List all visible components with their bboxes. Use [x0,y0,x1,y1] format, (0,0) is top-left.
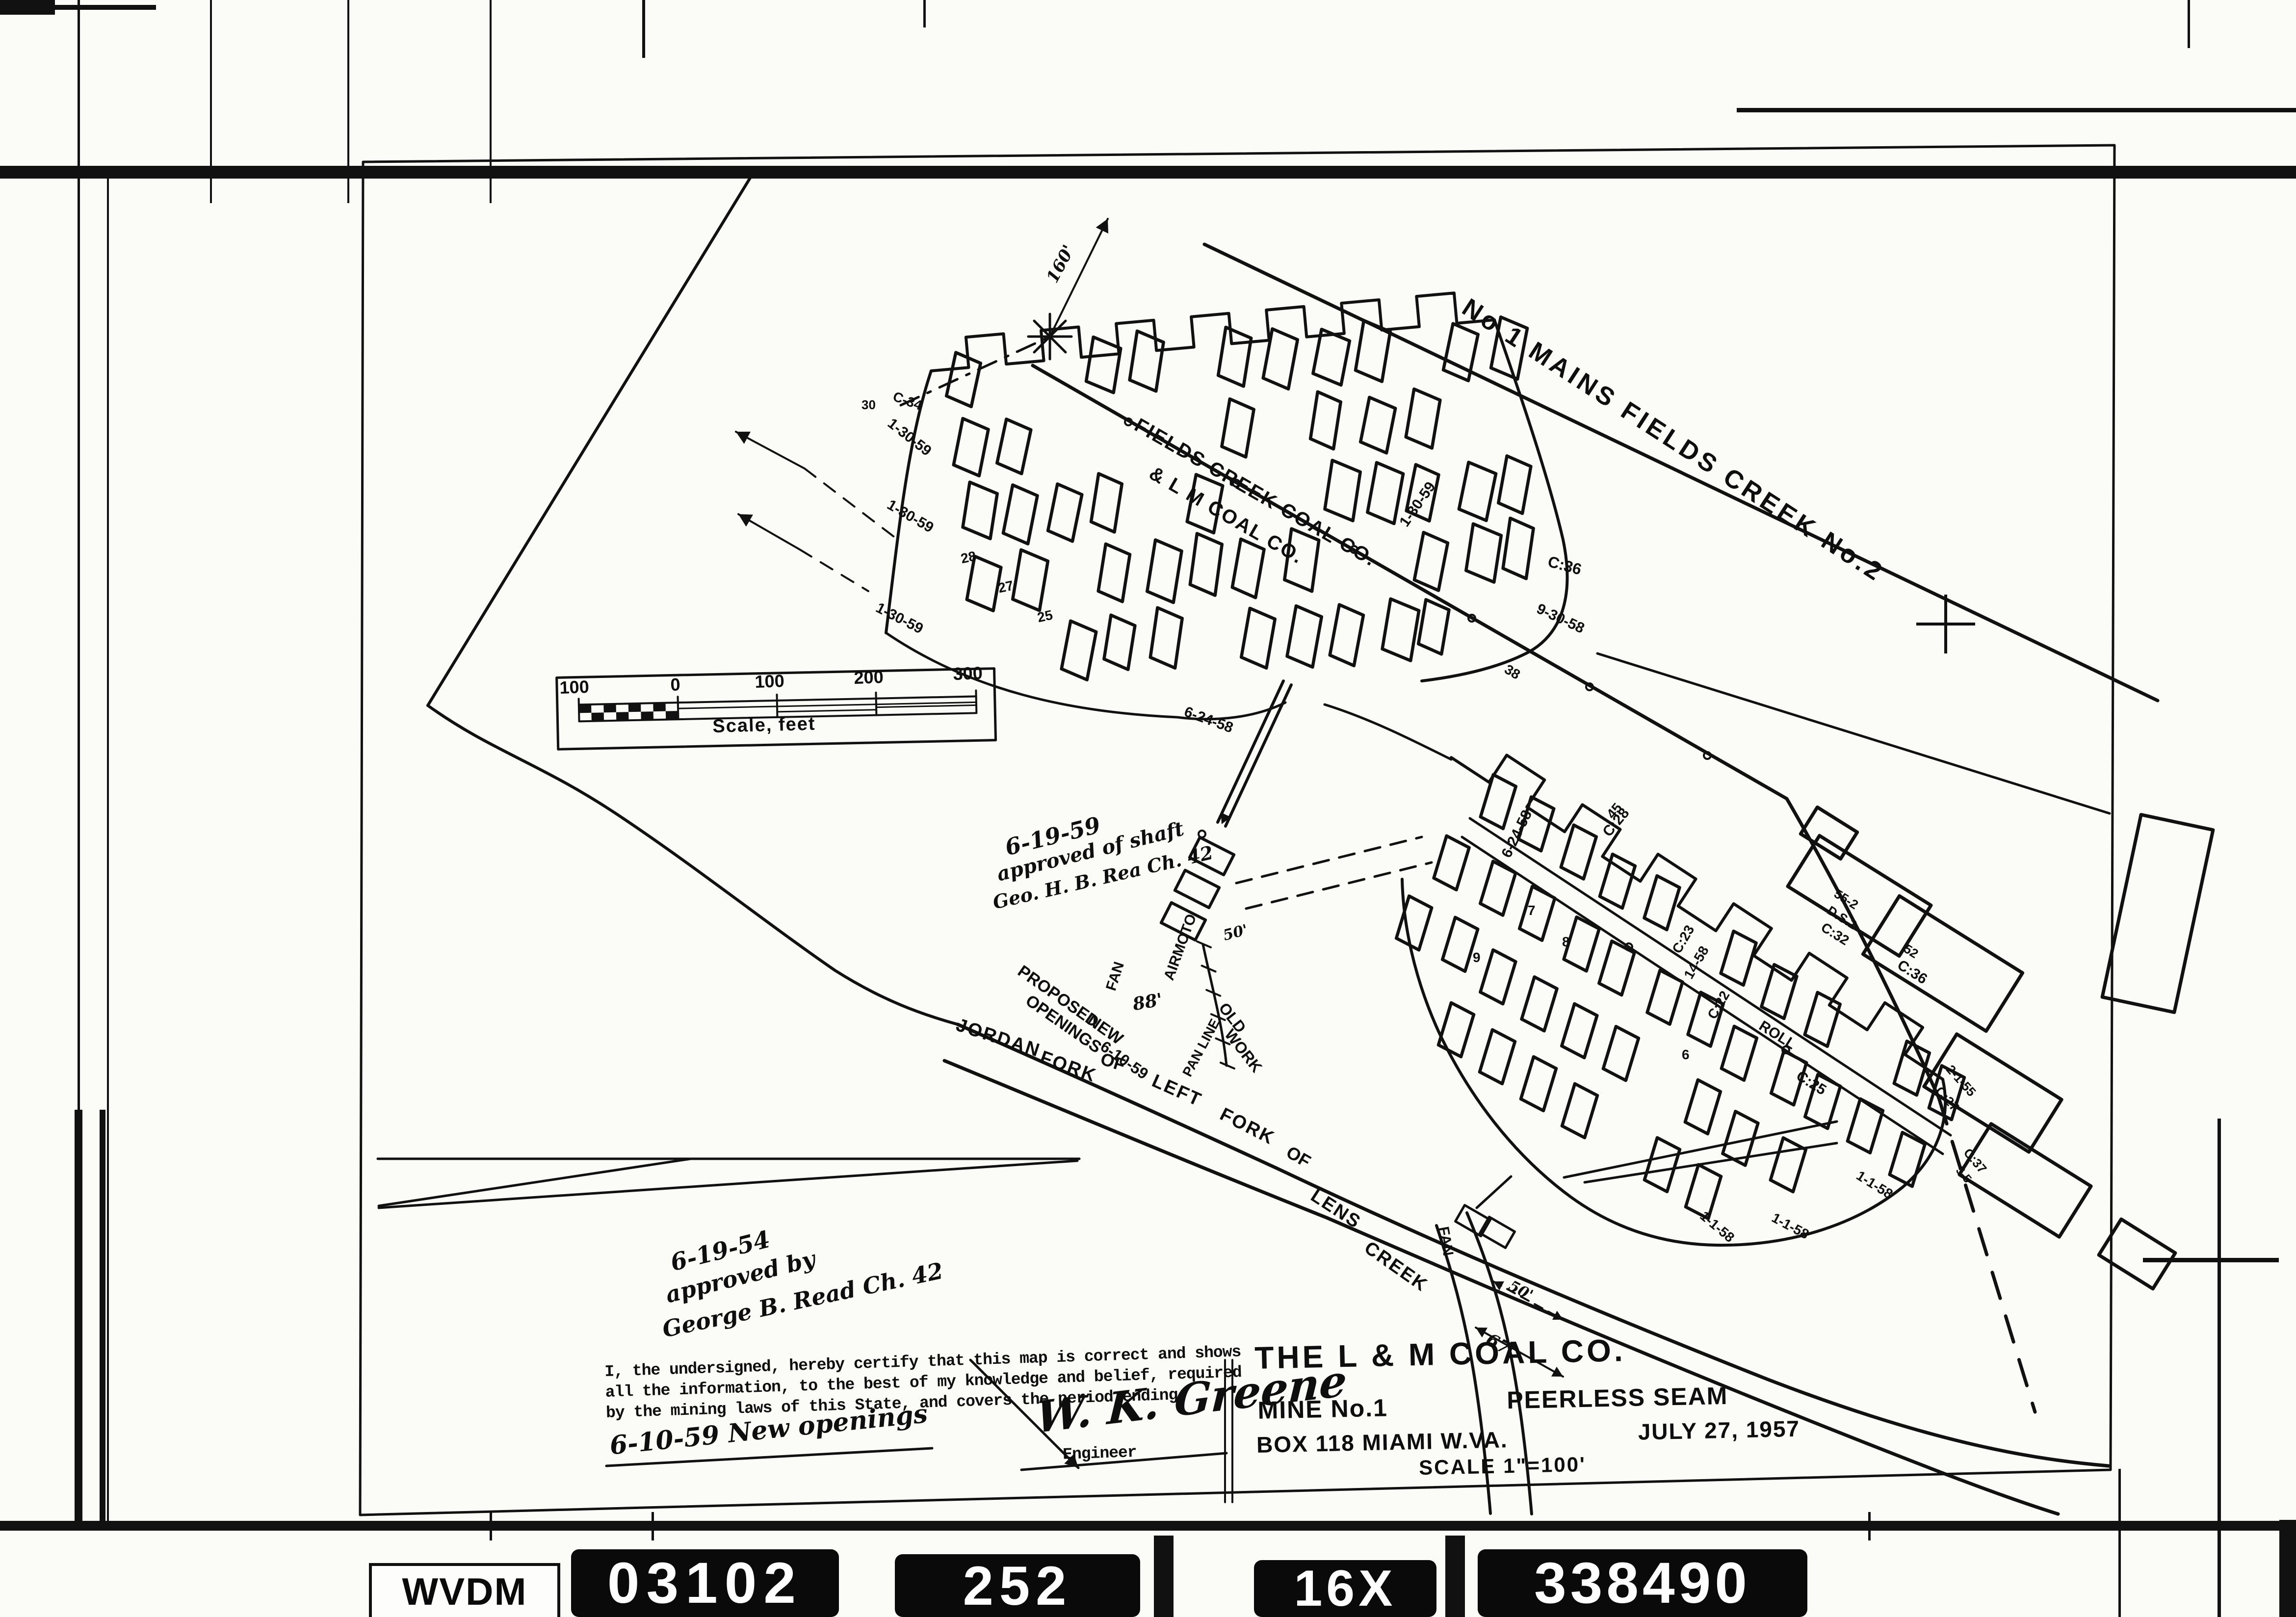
scale-bar-tick: 300 [953,664,983,683]
creek-lines [944,1024,2109,1514]
map-scale-note: SCALE 1"=100' [1419,1454,1587,1478]
film-strip-plate: 03102 [571,1549,839,1617]
signature-title: Engineer [1063,1444,1137,1463]
isolated-pillars [1788,807,2213,1288]
company-address: BOX 118 MIAMI W.VA. [1256,1428,1508,1456]
film-strip-plate: 16X [1254,1560,1436,1617]
scale-bar-tick: 100 [755,672,784,691]
film-strip-plate: 338490 [1478,1549,1807,1617]
seam-name: PEERLESS SEAM [1507,1383,1728,1412]
crease-marks [378,1121,1837,1208]
scale-bar-tick: 200 [854,668,884,687]
map-annotation: 7 [1528,904,1536,917]
scale-bar-tick: 100 [559,678,589,697]
film-strip-agency: WVDM [369,1563,560,1617]
map-annotation: 6 [1682,1048,1690,1062]
scale-bar-caption: Scale, feet [712,715,816,736]
map-annotation: 9 [1473,951,1481,965]
mine-workings-panel-2 [1396,755,1964,1245]
portal-area [1161,681,1563,1377]
scale-bar-tick: 0 [670,676,680,694]
map-annotation: 27 [997,579,1015,596]
scanned-mine-map-page: No.1 MAINS FIELDS CREEK No.2FIELDS CREEK… [0,0,2296,1617]
map-annotation: 25 [1036,608,1054,625]
film-strip-plate: 252 [895,1554,1140,1617]
map-annotation: 28 [960,549,977,566]
map-annotation: 30 [861,398,876,411]
map-annotation: 88' [1131,991,1164,1013]
map-annotation: 8 [1562,935,1570,949]
map-date: JULY 27, 1957 [1638,1417,1800,1443]
